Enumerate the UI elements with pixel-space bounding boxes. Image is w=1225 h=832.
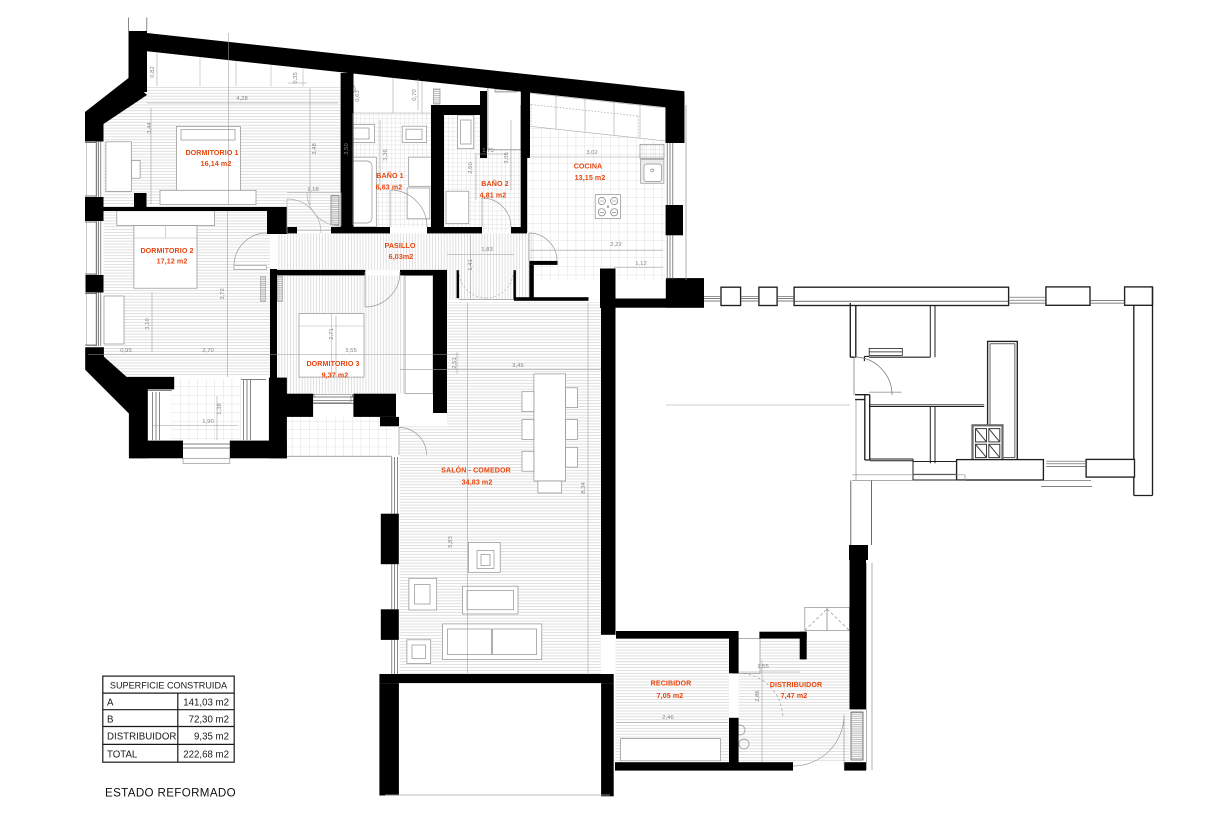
svg-text:16,14 m2: 16,14 m2 xyxy=(201,160,232,168)
svg-text:6,03m2: 6,03m2 xyxy=(389,253,414,261)
svg-text:BAÑO 1: BAÑO 1 xyxy=(376,171,403,180)
svg-text:A: A xyxy=(107,698,114,709)
svg-text:B: B xyxy=(107,714,113,725)
svg-text:2,71: 2,71 xyxy=(329,328,335,339)
svg-text:7,05 m2: 7,05 m2 xyxy=(657,692,684,700)
svg-text:3,44: 3,44 xyxy=(147,122,153,134)
svg-text:8,34: 8,34 xyxy=(581,482,587,494)
svg-text:RECIBIDOR: RECIBIDOR xyxy=(651,680,692,688)
svg-text:0,70: 0,70 xyxy=(412,89,418,101)
svg-text:9,35 m2: 9,35 m2 xyxy=(194,732,229,743)
svg-text:SUPERFICIE CONSTRUIDA: SUPERFICIE CONSTRUIDA xyxy=(110,681,228,691)
svg-text:1,38: 1,38 xyxy=(217,403,223,415)
svg-text:3,48: 3,48 xyxy=(312,143,318,155)
svg-text:2,50: 2,50 xyxy=(468,162,474,174)
svg-text:1,18: 1,18 xyxy=(307,187,319,193)
svg-text:SALÓN - COMEDOR: SALÓN - COMEDOR xyxy=(441,466,511,475)
svg-text:1,90: 1,90 xyxy=(202,419,214,425)
svg-text:DISTRIBUIDOR: DISTRIBUIDOR xyxy=(770,681,822,689)
svg-text:0,82: 0,82 xyxy=(150,66,156,77)
svg-text:2,70: 2,70 xyxy=(202,348,214,354)
svg-text:3,45: 3,45 xyxy=(512,363,524,369)
svg-text:3,72: 3,72 xyxy=(220,288,226,299)
svg-text:13,15 m2: 13,15 m2 xyxy=(575,174,606,182)
svg-text:COCINA: COCINA xyxy=(574,163,603,171)
svg-text:1,83: 1,83 xyxy=(481,247,493,253)
svg-text:7,47 m2: 7,47 m2 xyxy=(781,692,808,700)
svg-text:1,41: 1,41 xyxy=(468,259,474,270)
svg-text:BAÑO 2: BAÑO 2 xyxy=(481,179,508,188)
svg-text:4,81 m2: 4,81 m2 xyxy=(480,192,507,200)
svg-text:2,86: 2,86 xyxy=(755,690,761,702)
svg-text:PASILLO: PASILLO xyxy=(385,242,416,250)
svg-text:TOTAL: TOTAL xyxy=(107,750,138,761)
svg-text:2,51: 2,51 xyxy=(452,357,458,368)
svg-text:2,22: 2,22 xyxy=(610,242,621,248)
svg-text:3,50: 3,50 xyxy=(344,143,350,155)
svg-text:141,03 m2: 141,03 m2 xyxy=(183,698,229,709)
svg-text:3,10: 3,10 xyxy=(145,318,151,330)
svg-text:1,12: 1,12 xyxy=(635,261,646,267)
svg-text:34,83 m2: 34,83 m2 xyxy=(462,479,493,487)
svg-text:DORMITORIO 2: DORMITORIO 2 xyxy=(140,247,193,255)
svg-text:ESTADO REFORMADO: ESTADO REFORMADO xyxy=(105,787,236,800)
svg-text:DISTRIBUIDOR: DISTRIBUIDOR xyxy=(107,732,176,743)
svg-text:222,68 m2: 222,68 m2 xyxy=(183,750,229,761)
svg-text:6,63 m2: 6,63 m2 xyxy=(376,184,403,192)
svg-text:3,36: 3,36 xyxy=(383,149,389,161)
svg-text:17,12 m2: 17,12 m2 xyxy=(157,258,188,266)
svg-text:0,35: 0,35 xyxy=(293,72,299,84)
svg-text:3,02: 3,02 xyxy=(586,150,597,156)
svg-text:3,05: 3,05 xyxy=(504,152,510,164)
svg-text:9,37 m2: 9,37 m2 xyxy=(322,372,349,380)
svg-text:2,46: 2,46 xyxy=(662,715,674,721)
svg-text:DORMITORIO 1: DORMITORIO 1 xyxy=(185,149,238,157)
svg-text:5,83: 5,83 xyxy=(448,536,454,548)
svg-text:1,55: 1,55 xyxy=(757,664,769,670)
svg-text:1,75: 1,75 xyxy=(482,148,494,154)
svg-text:72,30 m2: 72,30 m2 xyxy=(189,714,229,725)
svg-text:4,28: 4,28 xyxy=(236,96,248,102)
svg-text:DORMITORIO 3: DORMITORIO 3 xyxy=(306,360,359,368)
svg-text:3,55: 3,55 xyxy=(345,348,357,354)
svg-text:0,95: 0,95 xyxy=(120,348,132,354)
svg-text:0,63: 0,63 xyxy=(355,90,361,102)
